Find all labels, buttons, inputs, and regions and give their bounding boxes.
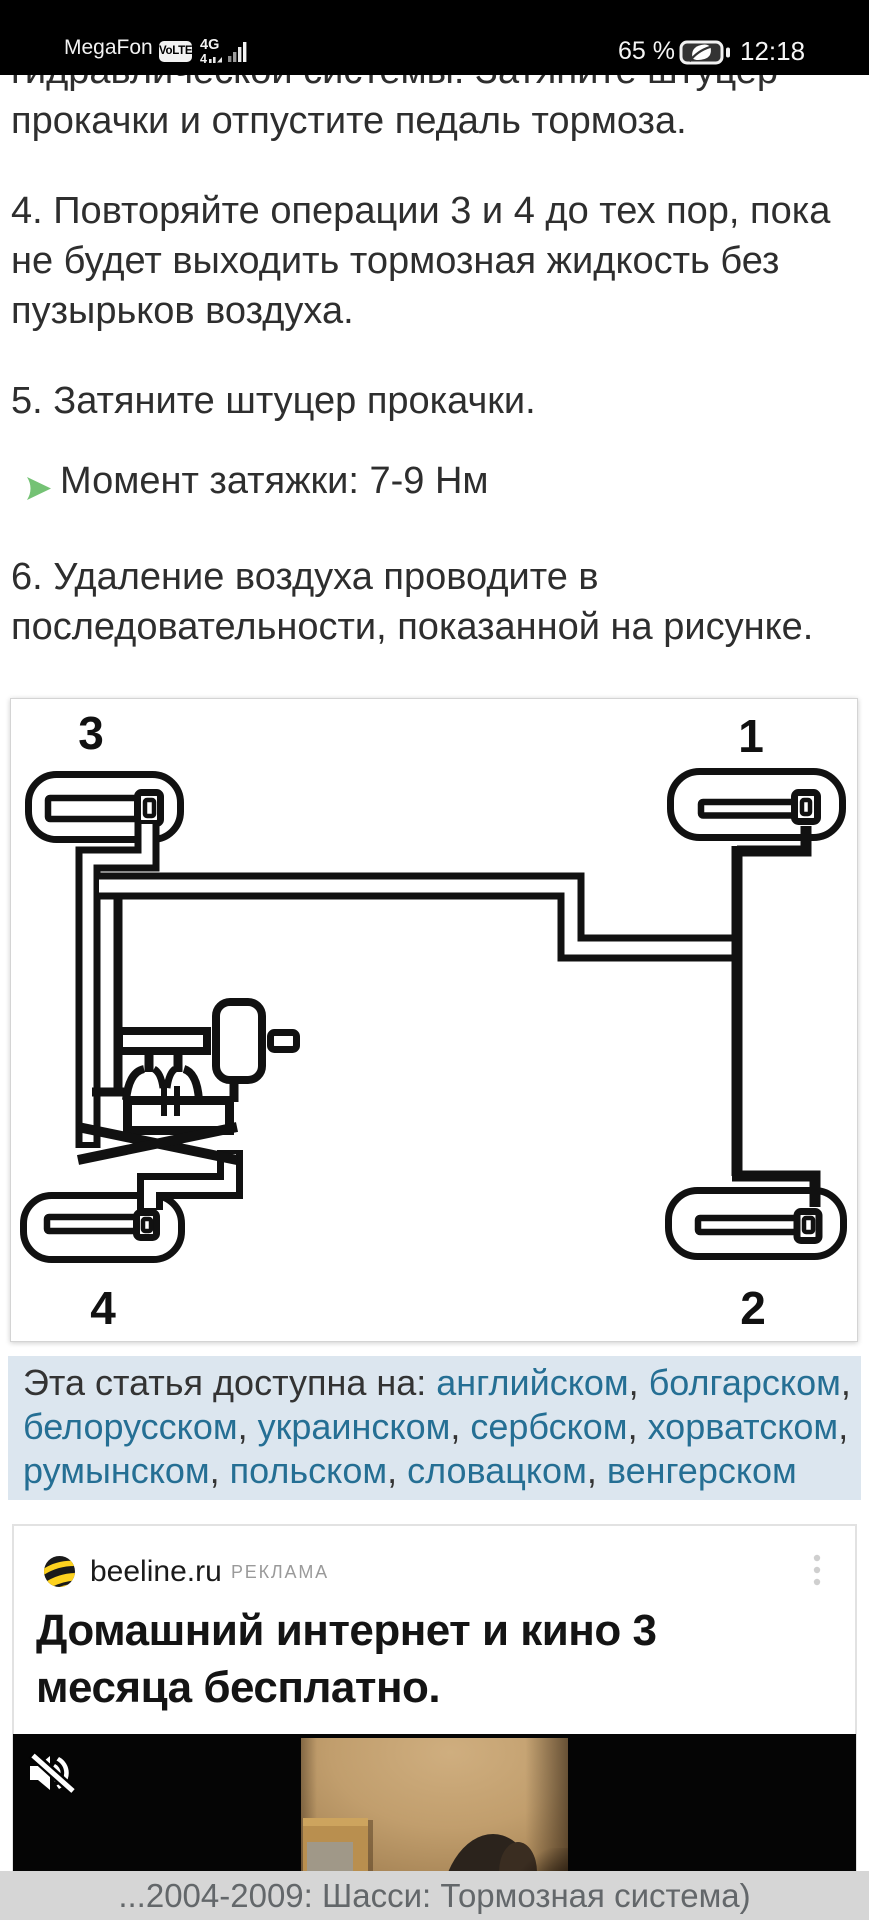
svg-text:2: 2 <box>740 1282 766 1334</box>
svg-text:4: 4 <box>90 1282 116 1334</box>
svg-text:3: 3 <box>78 707 104 759</box>
svg-text:4G: 4G <box>200 37 219 53</box>
svg-text:4: 4 <box>200 52 207 66</box>
svg-text:1: 1 <box>738 710 764 762</box>
